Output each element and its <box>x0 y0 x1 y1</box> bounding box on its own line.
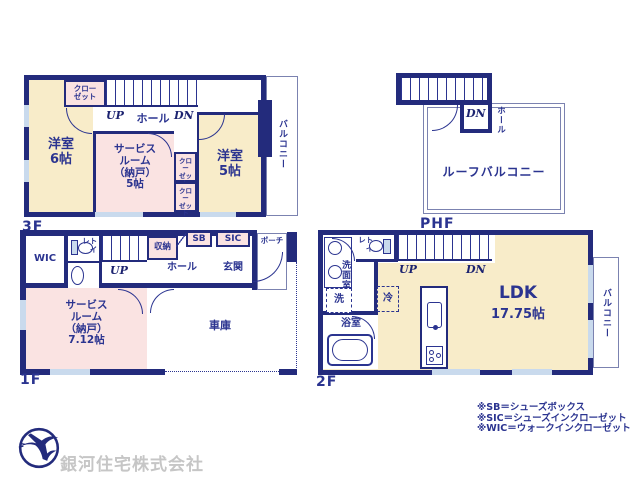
hall-phf-label: ホール <box>496 106 505 135</box>
room-west6-3f-label: 洋室 6帖 <box>31 138 91 167</box>
stairs-phf-dn-label: DN <box>466 107 486 120</box>
window <box>588 320 593 358</box>
stairs-3f <box>106 80 198 107</box>
toilet-icon <box>383 239 391 254</box>
sic-1f-label: SIC <box>218 234 248 244</box>
closet-top-3f-label: クロー ゼット <box>66 85 104 102</box>
sb-1f-label: SB <box>188 234 210 244</box>
company-logo <box>17 426 61 470</box>
window <box>200 212 236 217</box>
stairs-1f-up-label: UP <box>110 264 128 277</box>
window <box>24 160 29 182</box>
garage-dotted-right <box>296 262 297 370</box>
storage-1f-label: 収納 <box>149 243 176 253</box>
bathtub-inner <box>332 339 368 361</box>
floor-label-2f: 2F <box>316 374 337 390</box>
entrance-1f-label: 玄関 <box>214 262 252 273</box>
stairs-2f-dn-label: DN <box>466 263 486 276</box>
toilet-room-2f: トイレ <box>356 235 398 262</box>
ldk-name-label: LDK <box>468 283 568 303</box>
wall-segment-3f <box>258 100 272 157</box>
bird-globe-icon <box>17 426 61 470</box>
floor-plan-page: { "colors": { "wall_navy": "#232b7c", "r… <box>0 0 640 480</box>
hall-3f-label: ホール <box>118 113 188 125</box>
stairs-2f-up-label: UP <box>399 263 417 276</box>
stove-icon <box>426 346 443 365</box>
porch-1f-label: ポーチ <box>258 237 286 245</box>
window <box>24 105 29 127</box>
toilet-1f-label: トイレ <box>82 237 97 261</box>
window <box>50 369 90 375</box>
window <box>512 369 552 375</box>
window <box>95 212 143 217</box>
washroom-2f-label: 洗面室 <box>340 260 349 290</box>
legend: ※SB＝シューズボックス ※SIC＝シューズインクローゼット ※WIC＝ウォーク… <box>477 403 631 435</box>
closet-top-3f: クロー ゼット <box>64 80 106 107</box>
legend-line-sb: ※SB＝シューズボックス <box>477 403 631 414</box>
balcony-3f-label: バルコニー <box>277 119 286 169</box>
storage-1f: 収納 <box>147 236 178 260</box>
refrigerator-box-2f: 冷 <box>377 286 399 312</box>
window <box>588 265 593 303</box>
sb-1f: SB <box>186 231 212 247</box>
floor-label-1f: 1F <box>20 372 41 388</box>
stair-landing-phf: DN <box>460 101 492 133</box>
toilet-icon <box>369 240 383 252</box>
wic-room-1f: WIC <box>26 236 68 283</box>
wall-garage-bottom-right <box>279 369 297 375</box>
company-name: 銀河住宅株式会社 <box>60 450 204 475</box>
closet-b-3f: クロー ゼット <box>174 182 197 212</box>
wic-1f-label: WIC <box>26 253 64 264</box>
service-room-1f-label: サービス ルーム （納戸） 7.12帖 <box>44 300 129 347</box>
door-arc-icon <box>150 289 174 313</box>
faucet-icon <box>433 325 438 330</box>
toilet-icon <box>71 240 78 255</box>
stairs-2f <box>398 235 492 261</box>
ldk-size-label: 17.75帖 <box>468 303 568 322</box>
washbasin-icon <box>71 266 84 285</box>
window <box>432 369 480 375</box>
wall-garage-bottom-left <box>147 369 165 375</box>
closet-b-3f-label: クロー ゼット <box>176 188 195 217</box>
washer-2f-label: 洗 <box>327 294 351 305</box>
ldk-label-group: LDK 17.75帖 <box>468 283 568 322</box>
washer-box-2f: 洗 <box>326 288 352 313</box>
closet-a-3f: クロー ゼット <box>174 152 197 182</box>
window <box>20 300 26 330</box>
wall-segment-1f-right <box>287 232 297 262</box>
roof-balcony-label: ルーフバルコニー <box>438 166 550 179</box>
room-west5-3f-label: 洋室 5帖 <box>201 150 259 179</box>
legend-line-wic: ※WIC＝ウォークインクローゼット <box>477 424 631 435</box>
garage-dotted-bottom <box>165 371 279 372</box>
washbasin-room-1f <box>68 263 102 289</box>
balcony-2f-label: バルコニー <box>601 288 610 338</box>
fridge-2f-label: 冷 <box>378 293 398 304</box>
sic-1f: SIC <box>216 231 250 247</box>
toilet-room-1f: トイレ <box>68 236 102 263</box>
hall-1f-label: ホール <box>150 262 214 273</box>
garage-label: 車庫 <box>198 320 242 332</box>
stairs-1f <box>102 236 147 262</box>
balcony-2f: バルコニー <box>593 257 619 368</box>
kitchen-island-2f <box>420 286 448 369</box>
